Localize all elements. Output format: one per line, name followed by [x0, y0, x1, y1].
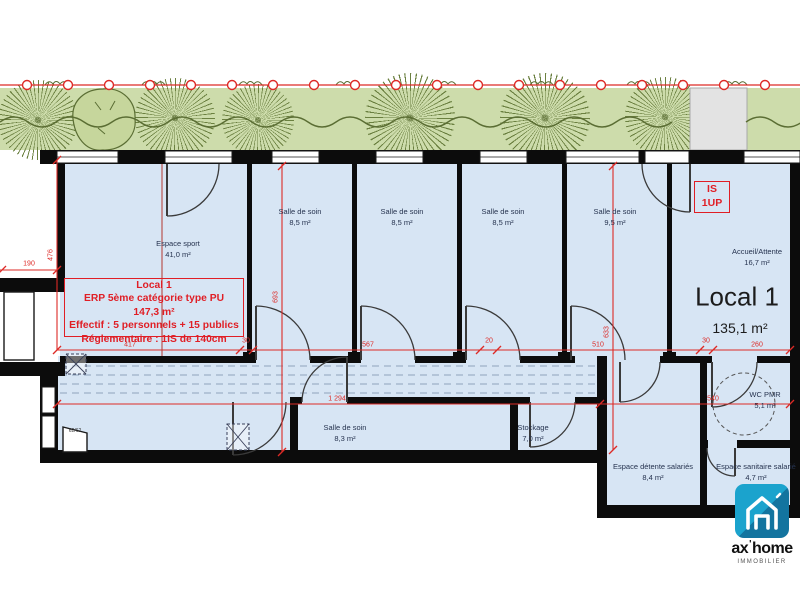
room-label-accueil-attente: Accueil/Attente16,7 m²	[732, 248, 782, 268]
room-label-salle-de-soin-5: Salle de soin8,3 m²	[324, 424, 367, 444]
door-size-note: 62/62	[69, 428, 82, 434]
room-label-salle-de-soin-3: Salle de soin8,5 m²	[482, 208, 525, 228]
dimension-label: 540	[707, 396, 719, 403]
erp-annotation-box: Local 1 ERP 5ème catégorie type PU 147,3…	[64, 278, 244, 337]
dimension-label: 190	[23, 261, 35, 268]
dimension-label: 20	[485, 338, 493, 345]
dimension-label: 417	[124, 342, 136, 349]
fence-layer	[0, 81, 800, 90]
room-label-wc-pmr: WC PMR5,1 m²	[749, 391, 780, 411]
logo-brand-text: ax'home	[727, 540, 797, 558]
room-label-salle-de-soin-2: Salle de soin8,5 m²	[381, 208, 424, 228]
is-marker-box: IS 1UP	[694, 181, 730, 213]
dimension-label: 693	[273, 291, 280, 303]
local-area: 135,1 m²	[712, 320, 767, 336]
dimension-label: 260	[751, 342, 763, 349]
annotation-line: 147,3 m²	[133, 306, 174, 319]
dimension-label: 1 294	[328, 396, 346, 403]
room-label-salle-de-soin-4: Salle de soin9,5 m²	[594, 208, 637, 228]
dimension-label: 567	[362, 342, 374, 349]
dimension-label: 510	[592, 342, 604, 349]
local-title: Local 1	[695, 282, 779, 313]
is-marker-line: IS	[695, 182, 729, 196]
house-icon	[735, 484, 789, 538]
dimension-label: 476	[48, 249, 55, 261]
annotation-line: ERP 5ème catégorie type PU	[84, 292, 224, 305]
agency-logo: ax'home IMMOBILIER	[727, 484, 797, 565]
dimension-label: 633	[604, 326, 611, 338]
room-label-espace-sport: Espace sport41,0 m²	[156, 240, 200, 260]
floor-plan-page: Espace sport41,0 m² Salle de soin8,5 m² …	[0, 0, 800, 600]
dimension-label: 30	[702, 338, 710, 345]
is-marker-line: 1UP	[695, 196, 729, 210]
room-label-espace-detente: Espace détente salariés8,4 m²	[613, 463, 693, 483]
room-label-salle-de-soin-1: Salle de soin8,5 m²	[279, 208, 322, 228]
logo-subtitle: IMMOBILIER	[727, 559, 797, 565]
landscape-layer	[0, 88, 800, 150]
room-label-stockage: Stockage7,0 m²	[517, 424, 548, 444]
room-label-espace-sanitaire: Espace sanitaire salarié4,7 m²	[716, 463, 796, 483]
annotation-line: Effectif : 5 personnels + 15 publics	[69, 319, 239, 332]
annotation-line: Local 1	[136, 279, 171, 292]
dimension-label: 30	[242, 338, 250, 345]
annotation-line: Réglementaire : 1IS de 140cm	[81, 333, 226, 346]
